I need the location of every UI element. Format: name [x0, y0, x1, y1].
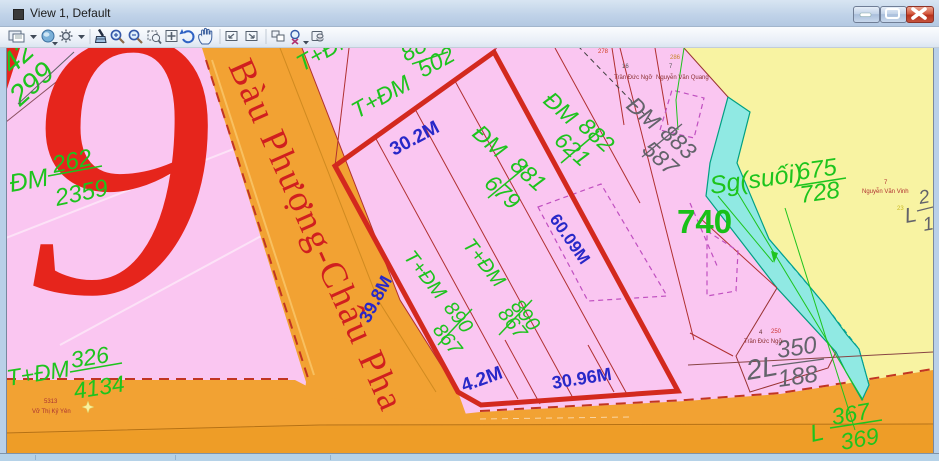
svg-text:23: 23 [897, 206, 904, 212]
svg-text:Vỡ Thị Kỷ Yên: Vỡ Thị Kỷ Yên [32, 408, 71, 415]
svg-text:Nguyễn Văn Vinh: Nguyễn Văn Vinh [862, 188, 909, 195]
svg-text:740: 740 [677, 203, 732, 240]
svg-text:2L: 2L [743, 350, 780, 386]
svg-text:Trần Đức Ngỡ: Trần Đức Ngỡ [614, 75, 652, 81]
svg-text:350: 350 [775, 332, 819, 364]
svg-text:278: 278 [598, 49, 609, 55]
svg-text:250: 250 [771, 329, 782, 335]
svg-text:Nguyễn Văn Quang: Nguyễn Văn Quang [656, 74, 709, 81]
svg-text:9: 9 [22, 48, 214, 376]
svg-text:Trần Đức Ngỡ: Trần Đức Ngỡ [744, 339, 782, 345]
svg-text:188: 188 [776, 361, 820, 393]
svg-text:16: 16 [622, 64, 629, 70]
svg-text:286: 286 [670, 55, 681, 61]
svg-text:5313: 5313 [44, 399, 58, 405]
